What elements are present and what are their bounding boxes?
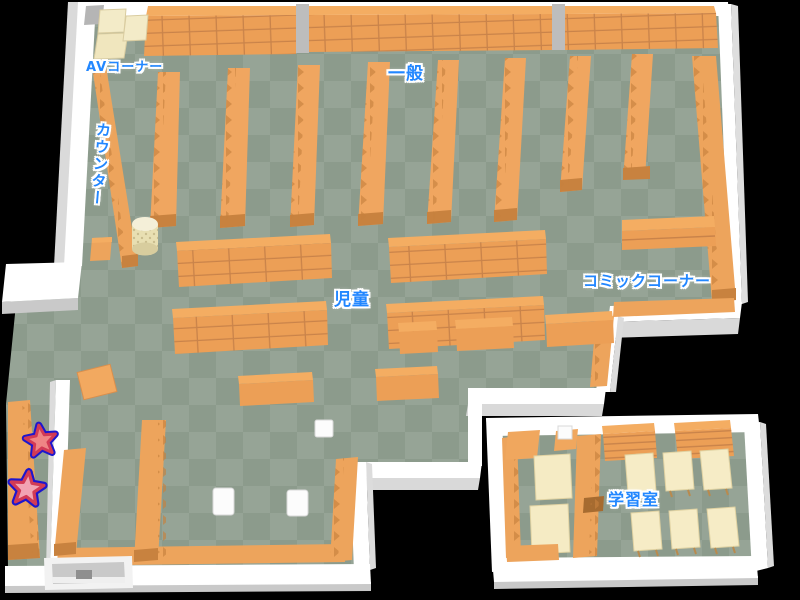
stool	[315, 420, 333, 437]
entrance-door	[44, 556, 133, 590]
stool	[558, 426, 572, 439]
area-label-study-room: 学習室	[608, 486, 659, 510]
area-label-av-corner: AVコーナー	[86, 56, 163, 75]
stool	[213, 488, 234, 515]
area-label-comic-corner: コミックコーナー	[583, 270, 711, 291]
area-label-general: 一般	[388, 59, 424, 84]
pillar	[296, 4, 309, 53]
floor-map-svg	[0, 0, 800, 600]
basket-cylinder	[132, 217, 158, 256]
pillar	[552, 4, 565, 50]
library-floor-map: AVコーナー 一般 カウンター 児童 コミックコーナー 学習室	[0, 0, 800, 600]
stool	[287, 490, 308, 516]
top-wall-shelves	[144, 4, 718, 56]
area-label-children: 児童	[334, 285, 370, 310]
